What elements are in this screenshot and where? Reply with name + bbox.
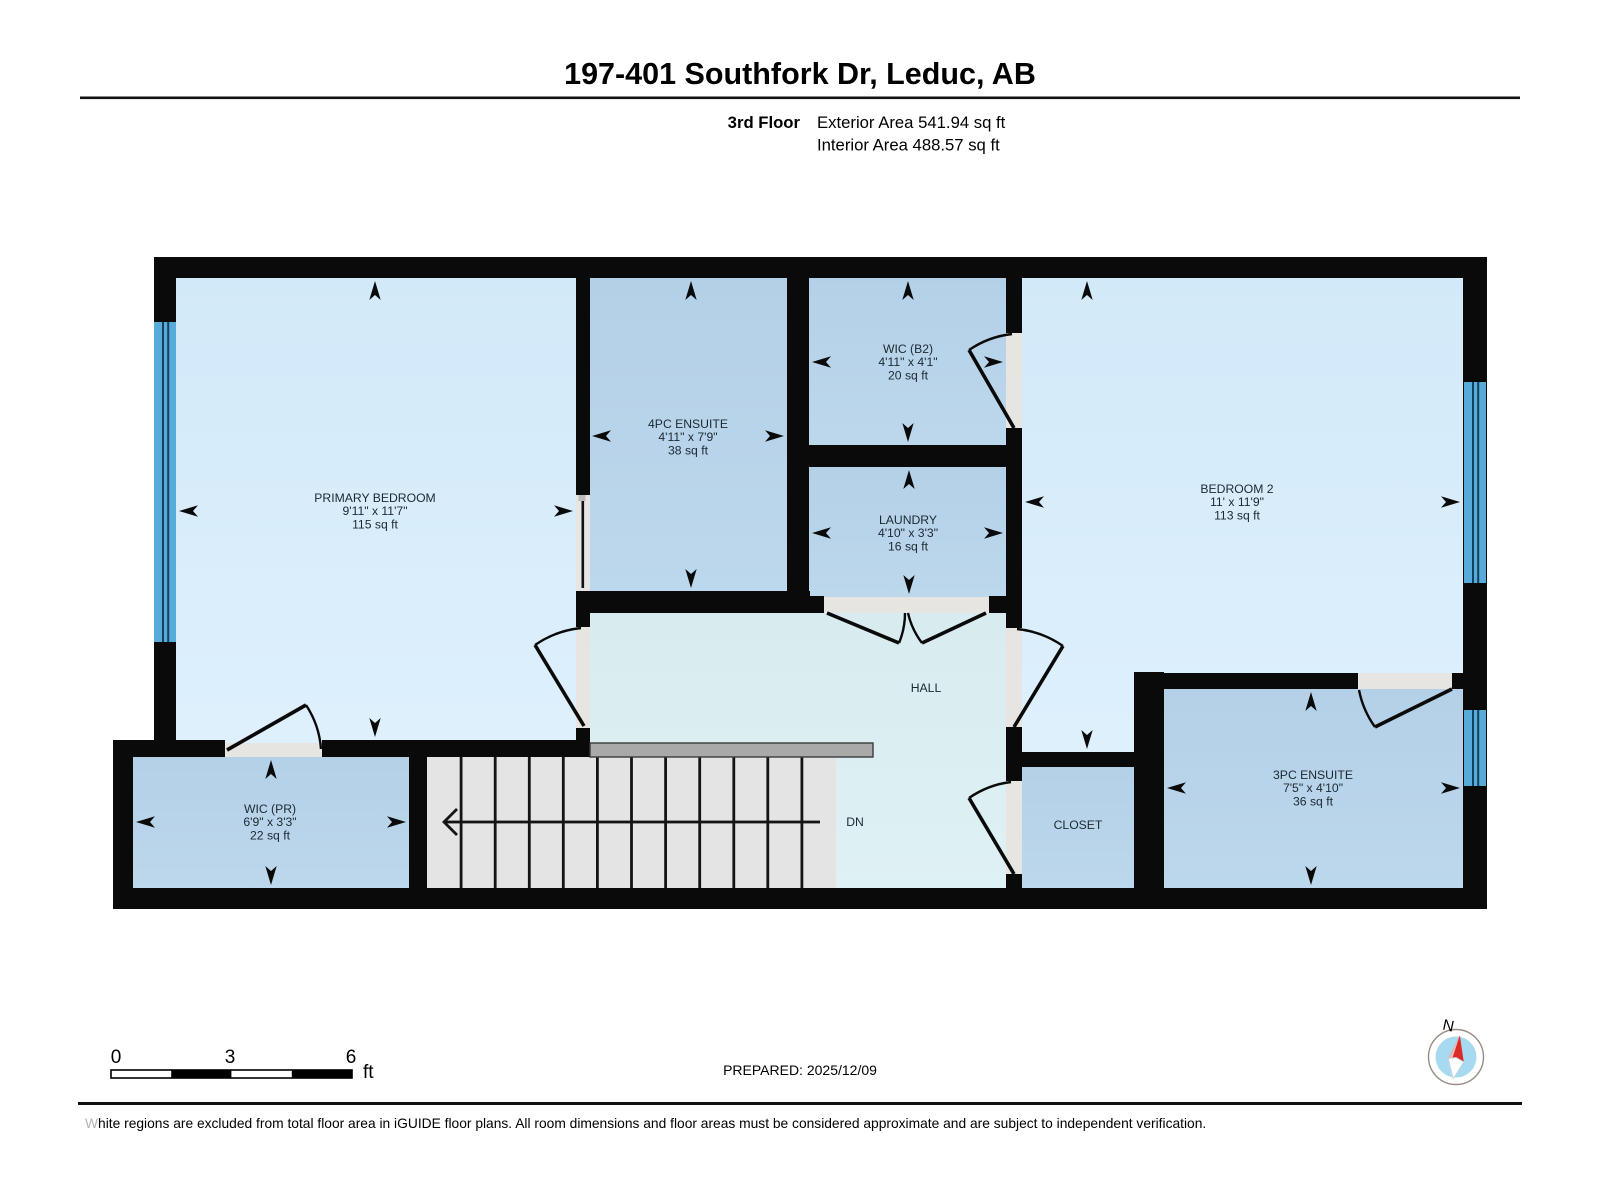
svg-text:11' x 11'9": 11' x 11'9"	[1210, 495, 1264, 509]
svg-text:6: 6	[346, 1047, 357, 1068]
svg-text:22 sq ft: 22 sq ft	[250, 829, 291, 843]
svg-text:Exterior Area 541.94 sq ft: Exterior Area 541.94 sq ft	[817, 113, 1006, 132]
svg-text:0: 0	[111, 1047, 122, 1068]
svg-text:HALL: HALL	[911, 681, 942, 695]
svg-text:WIC (PR): WIC (PR)	[244, 802, 296, 816]
svg-text:9'11" x 11'7": 9'11" x 11'7"	[342, 504, 407, 518]
svg-text:4'11" x 7'9": 4'11" x 7'9"	[658, 430, 717, 444]
svg-text:7'5" x 4'10": 7'5" x 4'10"	[1283, 781, 1343, 795]
svg-text:115 sq ft: 115 sq ft	[352, 518, 398, 532]
svg-text:White regions are excluded fro: White regions are excluded from total fl…	[85, 1116, 1206, 1131]
svg-text:3PC ENSUITE: 3PC ENSUITE	[1273, 768, 1353, 782]
svg-text:CLOSET: CLOSET	[1054, 818, 1103, 832]
svg-text:36 sq ft: 36 sq ft	[1293, 795, 1334, 809]
svg-text:3rd Floor: 3rd Floor	[728, 113, 801, 132]
svg-text:BEDROOM 2: BEDROOM 2	[1200, 482, 1273, 496]
svg-text:ft: ft	[363, 1062, 374, 1083]
svg-text:DN: DN	[846, 815, 864, 829]
svg-text:4PC ENSUITE: 4PC ENSUITE	[648, 417, 728, 431]
svg-text:3: 3	[225, 1047, 236, 1068]
svg-text:16 sq ft: 16 sq ft	[888, 540, 929, 554]
svg-text:113 sq ft: 113 sq ft	[1214, 509, 1260, 523]
svg-text:LAUNDRY: LAUNDRY	[879, 513, 937, 527]
svg-text:4'11" x 4'1": 4'11" x 4'1"	[878, 355, 937, 369]
svg-text:197-401 Southfork Dr, Leduc, A: 197-401 Southfork Dr, Leduc, AB	[564, 57, 1036, 91]
svg-text:38 sq ft: 38 sq ft	[668, 444, 709, 458]
svg-text:6'9" x 3'3": 6'9" x 3'3"	[243, 815, 296, 829]
svg-text:4'10" x 3'3": 4'10" x 3'3"	[878, 526, 938, 540]
svg-text:20 sq ft: 20 sq ft	[888, 369, 929, 383]
svg-text:PRIMARY BEDROOM: PRIMARY BEDROOM	[314, 491, 435, 505]
svg-text:WIC (B2): WIC (B2)	[883, 342, 933, 356]
svg-text:Interior Area 488.57 sq ft: Interior Area 488.57 sq ft	[817, 136, 1000, 155]
svg-text:PREPARED: 2025/12/09: PREPARED: 2025/12/09	[723, 1062, 877, 1078]
